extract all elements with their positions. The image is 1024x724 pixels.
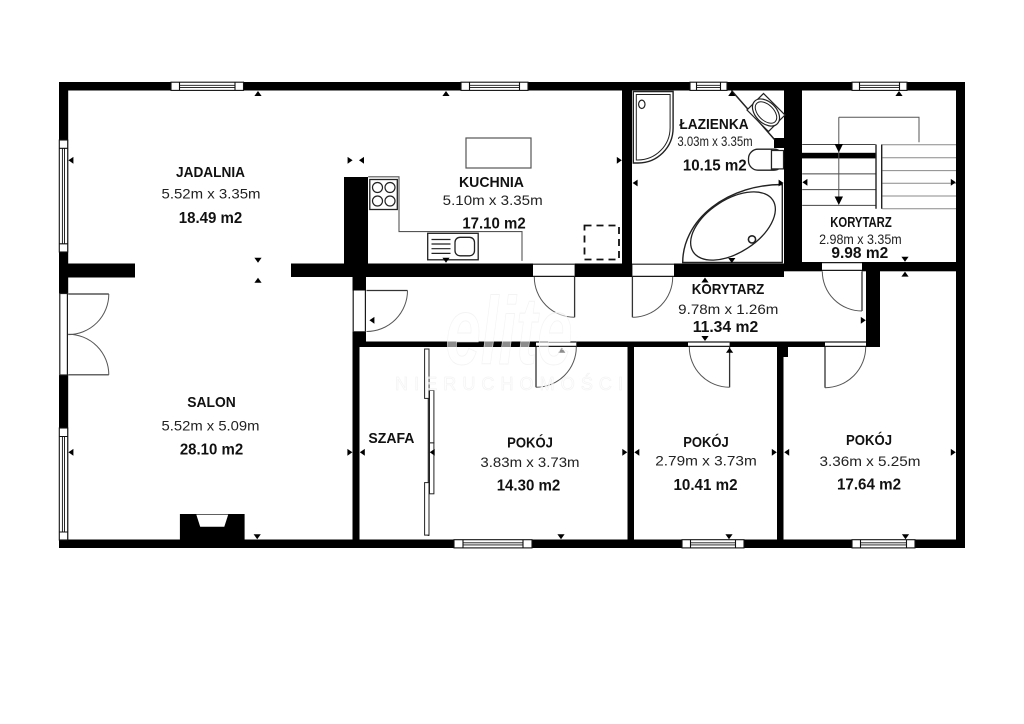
svg-text:POKÓJ: POKÓJ [507, 433, 553, 451]
svg-text:ŁAZIENKA: ŁAZIENKA [679, 116, 748, 133]
svg-text:17.10 m2: 17.10 m2 [462, 215, 525, 232]
svg-text:3.36m x 5.25m: 3.36m x 5.25m [820, 453, 921, 469]
svg-text:POKÓJ: POKÓJ [683, 433, 729, 451]
svg-text:14.30 m2: 14.30 m2 [497, 477, 561, 494]
svg-text:3.83m x 3.73m: 3.83m x 3.73m [480, 454, 579, 470]
svg-text:3.03m x 3.35m: 3.03m x 3.35m [677, 133, 752, 149]
svg-text:11.34 m2: 11.34 m2 [693, 319, 759, 336]
svg-text:KORYTARZ: KORYTARZ [830, 214, 892, 231]
svg-text:5.10m x 3.35m: 5.10m x 3.35m [443, 192, 543, 208]
svg-text:JADALNIA: JADALNIA [176, 164, 245, 181]
svg-text:10.15 m2: 10.15 m2 [683, 158, 747, 175]
svg-text:17.64 m2: 17.64 m2 [837, 476, 901, 493]
svg-text:SALON: SALON [187, 394, 236, 411]
svg-text:POKÓJ: POKÓJ [846, 431, 892, 449]
svg-text:28.10 m2: 28.10 m2 [180, 442, 243, 459]
svg-text:9.78m x 1.26m: 9.78m x 1.26m [678, 301, 778, 317]
svg-text:18.49 m2: 18.49 m2 [179, 210, 243, 227]
svg-text:5.52m x 3.35m: 5.52m x 3.35m [162, 186, 261, 202]
svg-text:9.98 m2: 9.98 m2 [831, 245, 888, 262]
svg-text:elite: elite [446, 278, 573, 385]
svg-text:10.41 m2: 10.41 m2 [674, 477, 738, 494]
svg-text:SZAFA: SZAFA [368, 430, 414, 447]
svg-text:2.79m x 3.73m: 2.79m x 3.73m [655, 453, 757, 469]
svg-text:5.52m x 5.09m: 5.52m x 5.09m [162, 418, 260, 434]
svg-text:KORYTARZ: KORYTARZ [692, 281, 765, 298]
svg-text:NIERUCHOMOŚCI: NIERUCHOMOŚCI [395, 373, 623, 394]
svg-text:KUCHNIA: KUCHNIA [459, 174, 524, 191]
